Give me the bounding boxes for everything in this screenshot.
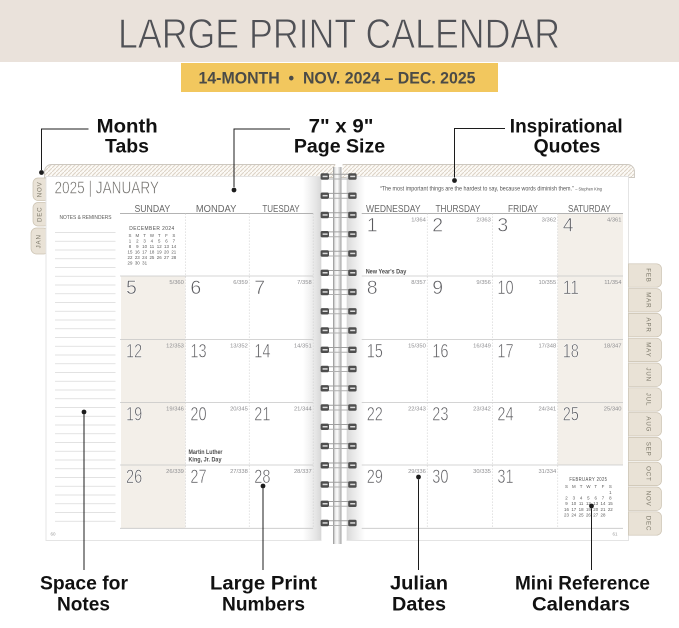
svg-text:17: 17 — [142, 250, 147, 255]
svg-text:Dates: Dates — [392, 594, 446, 616]
svg-text:20: 20 — [164, 250, 169, 255]
svg-text:16: 16 — [564, 507, 569, 512]
svg-text:19: 19 — [157, 250, 162, 255]
svg-text:31: 31 — [142, 261, 147, 266]
svg-text:9/356: 9/356 — [476, 280, 491, 286]
svg-text:30: 30 — [432, 466, 448, 488]
svg-text:F: F — [165, 233, 168, 238]
svg-text:Inspirational: Inspirational — [510, 115, 623, 137]
svg-text:30/335: 30/335 — [473, 469, 491, 475]
svg-text:5/360: 5/360 — [169, 280, 184, 286]
svg-text:FEB: FEB — [645, 268, 652, 282]
svg-text:2/363: 2/363 — [476, 218, 491, 224]
svg-text:“The most important things are: “The most important things are the harde… — [380, 185, 602, 192]
svg-text:DEC: DEC — [645, 516, 652, 531]
svg-text:T: T — [580, 484, 583, 489]
svg-text:13: 13 — [164, 244, 169, 249]
svg-text:27: 27 — [593, 512, 598, 517]
svg-text:31/334: 31/334 — [538, 469, 557, 475]
svg-text:S: S — [129, 233, 132, 238]
svg-text:29: 29 — [128, 261, 133, 266]
svg-text:23: 23 — [564, 512, 569, 517]
svg-text:25/340: 25/340 — [604, 407, 622, 413]
svg-text:18: 18 — [149, 250, 154, 255]
svg-text:21: 21 — [601, 507, 606, 512]
svg-text:NOTES & REMINDERS: NOTES & REMINDERS — [60, 215, 113, 221]
svg-text:24: 24 — [142, 255, 147, 260]
svg-text:24/341: 24/341 — [538, 407, 556, 413]
svg-text:31: 31 — [497, 466, 513, 488]
svg-text:14: 14 — [254, 341, 270, 363]
svg-text:M: M — [135, 233, 139, 238]
svg-text:14/351: 14/351 — [294, 344, 312, 350]
svg-text:14-MONTH • NOV. 2024 – DEC.: 14-MONTH • NOV. 2024 – DEC. 2025 — [199, 69, 476, 87]
svg-text:25: 25 — [579, 512, 584, 517]
svg-text:Martin Luther: Martin Luther — [189, 449, 223, 456]
svg-text:23: 23 — [135, 255, 140, 260]
svg-text:20: 20 — [593, 507, 598, 512]
svg-text:SEP: SEP — [645, 442, 652, 457]
svg-text:S: S — [172, 233, 175, 238]
svg-text:9: 9 — [432, 277, 443, 299]
svg-text:29: 29 — [367, 466, 383, 488]
svg-text:8/357: 8/357 — [411, 280, 426, 286]
svg-text:11: 11 — [563, 277, 579, 299]
svg-text:27: 27 — [190, 466, 206, 488]
svg-text:10: 10 — [571, 501, 576, 506]
svg-text:10/355: 10/355 — [538, 280, 556, 286]
svg-text:17/348: 17/348 — [538, 344, 556, 350]
svg-text:Page Size: Page Size — [294, 135, 385, 157]
svg-text:16: 16 — [135, 250, 140, 255]
svg-text:24: 24 — [571, 512, 576, 517]
svg-text:FEBRUARY 2025: FEBRUARY 2025 — [569, 477, 607, 483]
svg-text:2025 | JANUARY: 2025 | JANUARY — [55, 177, 160, 197]
svg-text:21: 21 — [171, 250, 176, 255]
svg-text:25: 25 — [149, 255, 154, 260]
svg-text:4: 4 — [563, 215, 574, 237]
svg-text:6: 6 — [190, 277, 201, 299]
svg-text:T: T — [594, 484, 597, 489]
svg-text:20: 20 — [190, 404, 206, 426]
svg-text:26/339: 26/339 — [166, 469, 184, 475]
svg-text:DECEMBER 2024: DECEMBER 2024 — [129, 226, 174, 232]
svg-text:F: F — [602, 484, 605, 489]
svg-text:15: 15 — [367, 341, 383, 363]
svg-text:JUN: JUN — [645, 367, 652, 381]
svg-text:18/347: 18/347 — [604, 344, 622, 350]
svg-text:18: 18 — [579, 507, 584, 512]
svg-text:60: 60 — [51, 532, 57, 537]
svg-text:17: 17 — [497, 341, 513, 363]
svg-text:Large Print: Large Print — [210, 573, 318, 595]
svg-text:NOV: NOV — [37, 181, 44, 197]
svg-text:LARGE PRINT CALENDAR: LARGE PRINT CALENDAR — [118, 10, 560, 57]
svg-text:13/352: 13/352 — [230, 344, 248, 350]
svg-text:10: 10 — [142, 244, 147, 249]
svg-text:Month: Month — [97, 115, 158, 137]
svg-text:12/353: 12/353 — [166, 344, 184, 350]
svg-text:3/362: 3/362 — [542, 218, 557, 224]
svg-text:20/345: 20/345 — [230, 407, 248, 413]
svg-text:17: 17 — [571, 507, 576, 512]
svg-text:5: 5 — [126, 277, 137, 299]
svg-text:22: 22 — [608, 507, 613, 512]
svg-text:King, Jr. Day: King, Jr. Day — [189, 457, 222, 464]
svg-text:7: 7 — [254, 277, 265, 299]
svg-text:M: M — [572, 484, 576, 489]
svg-text:JAN: JAN — [36, 234, 43, 248]
svg-text:13: 13 — [593, 501, 598, 506]
svg-text:22: 22 — [128, 255, 133, 260]
svg-text:61: 61 — [612, 532, 618, 537]
svg-text:T: T — [158, 233, 161, 238]
svg-text:NOV: NOV — [645, 491, 652, 507]
svg-text:12: 12 — [157, 244, 162, 249]
svg-text:28: 28 — [601, 512, 606, 517]
svg-text:Quotes: Quotes — [534, 135, 601, 157]
svg-text:JUL: JUL — [645, 393, 652, 406]
svg-text:DEC: DEC — [37, 207, 44, 222]
svg-text:4/361: 4/361 — [607, 218, 622, 224]
svg-text:21/344: 21/344 — [294, 407, 313, 413]
svg-text:Calendars: Calendars — [532, 594, 630, 616]
svg-text:16/349: 16/349 — [473, 344, 491, 350]
svg-text:24: 24 — [497, 404, 513, 426]
svg-text:1/364: 1/364 — [411, 218, 426, 224]
svg-text:15/350: 15/350 — [408, 344, 426, 350]
svg-text:6/359: 6/359 — [233, 280, 248, 286]
svg-text:27: 27 — [164, 255, 169, 260]
svg-text:27/338: 27/338 — [230, 469, 248, 475]
svg-text:14: 14 — [171, 244, 176, 249]
svg-text:10: 10 — [497, 277, 513, 299]
svg-text:AUG: AUG — [645, 416, 652, 432]
svg-text:1: 1 — [367, 215, 378, 237]
svg-text:Notes: Notes — [57, 594, 110, 616]
svg-text:Mini Reference: Mini Reference — [515, 573, 650, 595]
svg-text:15: 15 — [128, 250, 133, 255]
svg-text:7" x 9": 7" x 9" — [309, 115, 374, 137]
svg-text:11: 11 — [150, 244, 155, 249]
svg-text:16: 16 — [432, 341, 448, 363]
svg-text:15: 15 — [608, 501, 613, 506]
svg-text:Julian: Julian — [390, 573, 448, 595]
svg-text:26: 26 — [126, 466, 142, 488]
svg-text:28: 28 — [171, 255, 176, 260]
svg-text:19: 19 — [126, 404, 142, 426]
svg-text:22: 22 — [367, 404, 383, 426]
svg-text:29/336: 29/336 — [408, 469, 426, 475]
svg-text:23/342: 23/342 — [473, 407, 491, 413]
svg-text:26: 26 — [157, 255, 162, 260]
svg-text:Space for: Space for — [40, 573, 128, 595]
svg-text:13: 13 — [190, 341, 206, 363]
svg-text:30: 30 — [135, 261, 140, 266]
svg-text:MAY: MAY — [645, 342, 652, 357]
svg-text:2: 2 — [432, 215, 443, 237]
svg-text:New Year's Day: New Year's Day — [366, 268, 407, 275]
svg-text:23: 23 — [432, 404, 448, 426]
svg-text:OCT: OCT — [645, 466, 652, 481]
svg-text:21: 21 — [254, 404, 270, 426]
svg-text:14: 14 — [601, 501, 606, 506]
svg-text:MAR: MAR — [645, 292, 652, 308]
svg-text:Tabs: Tabs — [105, 135, 149, 157]
svg-text:26: 26 — [586, 512, 591, 517]
svg-text:8: 8 — [367, 277, 378, 299]
svg-text:28/337: 28/337 — [294, 469, 312, 475]
svg-text:S: S — [565, 484, 568, 489]
svg-text:19/346: 19/346 — [166, 407, 184, 413]
svg-text:7/358: 7/358 — [297, 280, 312, 286]
svg-text:Numbers: Numbers — [222, 594, 305, 616]
svg-text:22/343: 22/343 — [408, 407, 426, 413]
svg-text:25: 25 — [563, 404, 579, 426]
svg-text:3: 3 — [497, 215, 508, 237]
svg-text:APR: APR — [645, 318, 652, 333]
svg-text:12: 12 — [126, 341, 142, 363]
svg-text:S: S — [609, 484, 612, 489]
svg-text:T: T — [143, 233, 146, 238]
svg-text:11: 11 — [579, 501, 584, 506]
svg-text:18: 18 — [563, 341, 579, 363]
svg-text:11/354: 11/354 — [604, 280, 622, 286]
